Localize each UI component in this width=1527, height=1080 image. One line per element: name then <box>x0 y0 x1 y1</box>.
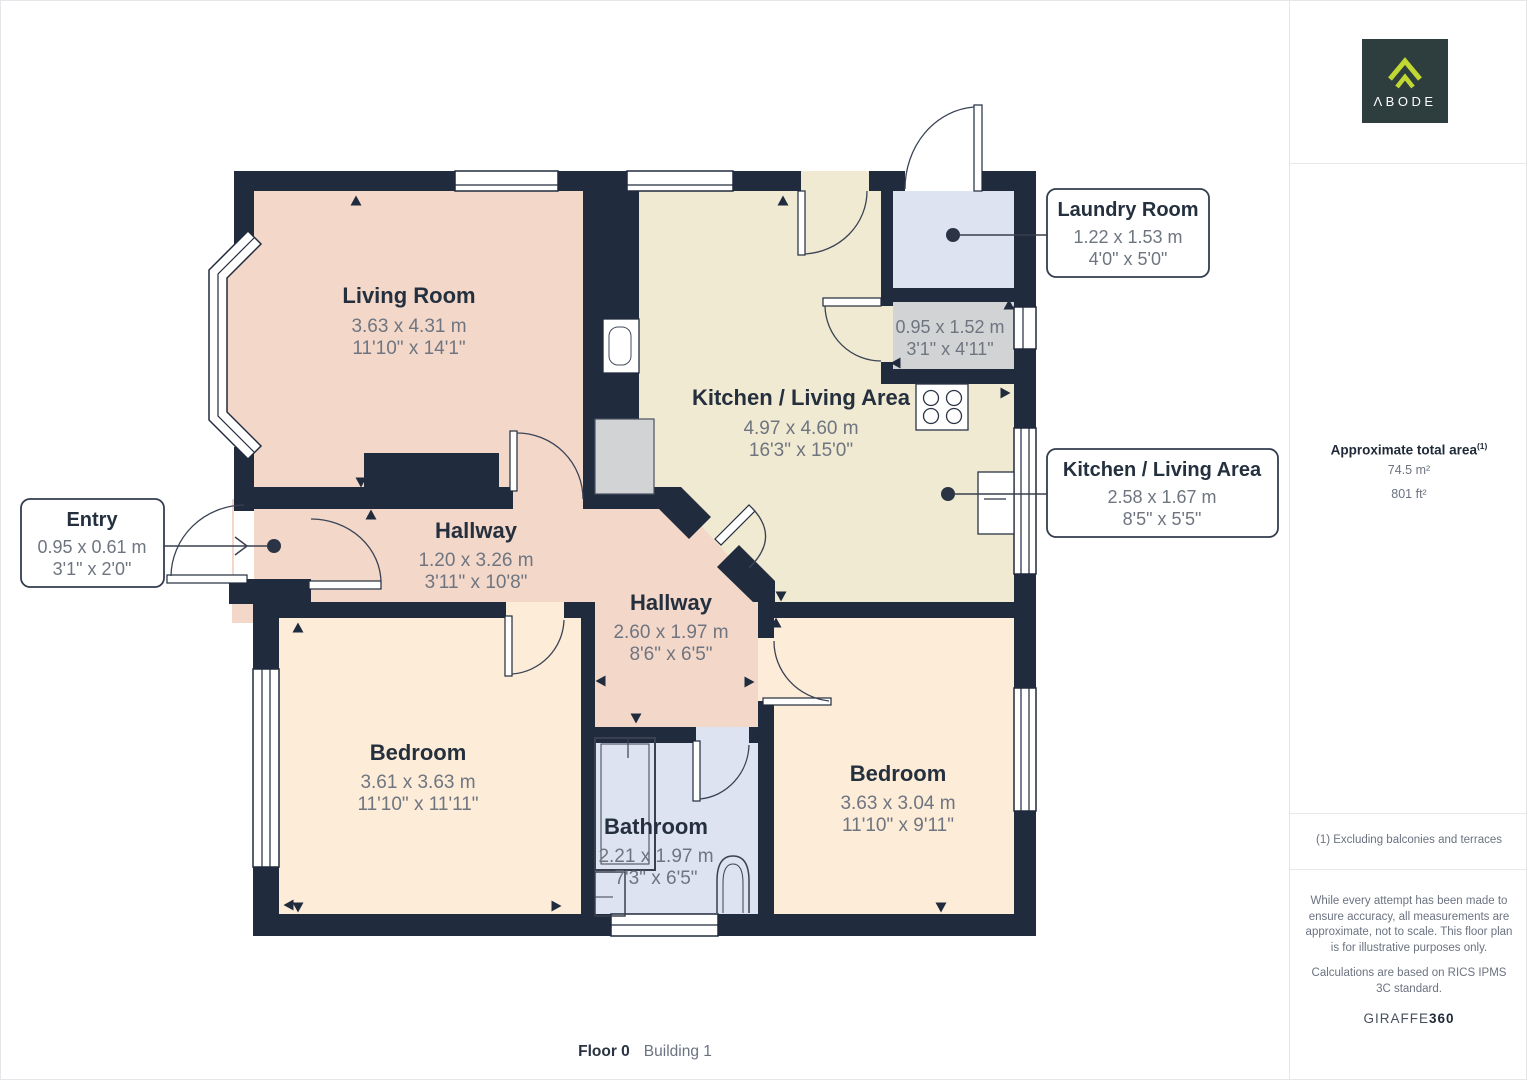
total-area-title: Approximate total area(1) <box>1290 441 1527 458</box>
callout-dims-metric: 1.22 x 1.53 m <box>1073 227 1182 247</box>
abode-logo: ΛBODE <box>1362 39 1448 123</box>
label-hallway-upper: Hallway 1.20 x 3.26 m 3'11" x 10'8" <box>418 518 533 593</box>
floorplan-svg: Living Room 3.63 x 4.31 m 11'10" x 14'1"… <box>1 1 1289 1080</box>
door-entry <box>167 505 254 583</box>
room-dims-metric: 3.63 x 4.31 m <box>351 316 466 337</box>
sidebar-divider <box>1290 813 1527 814</box>
room-name: Hallway <box>435 518 518 543</box>
kitchen-point <box>941 487 955 501</box>
label-bedroom-left: Bedroom 3.61 x 3.63 m 11'10" x 11'11" <box>357 740 478 815</box>
room-dims-imperial: 11'10" x 9'11" <box>842 815 954 836</box>
room-dims-imperial: 3'11" x 10'8" <box>425 572 528 593</box>
room-dims-metric: 2.21 x 1.97 m <box>598 846 713 867</box>
room-dims-imperial: 3'1" x 4'11" <box>906 339 993 359</box>
callout-title: Laundry Room <box>1057 199 1198 221</box>
callout-dims-metric: 0.95 x 0.61 m <box>37 537 146 557</box>
laundry-point <box>946 228 960 242</box>
room-name: Bedroom <box>850 761 947 786</box>
floorplan-canvas: Living Room 3.63 x 4.31 m 11'10" x 14'1"… <box>1 1 1289 1080</box>
room-dims-imperial: 11'10" x 11'11" <box>357 794 478 815</box>
wall-niche <box>603 319 639 373</box>
abode-chevron-icon <box>1385 54 1425 90</box>
total-area-title-text: Approximate total area <box>1331 443 1477 458</box>
disclaimer-accuracy: While every attempt has been made to ens… <box>1303 894 1515 956</box>
brand-suffix: 360 <box>1429 1011 1455 1026</box>
brand-name: GIRAFFE <box>1363 1011 1429 1026</box>
sink-icon <box>978 472 1014 534</box>
callout-title: Kitchen / Living Area <box>1063 459 1262 481</box>
room-dims-imperial: 8'6" x 6'5" <box>629 644 712 665</box>
room-dims-metric: 0.95 x 1.52 m <box>895 317 1004 337</box>
label-bedroom-right: Bedroom 3.63 x 3.04 m 11'10" x 9'11" <box>840 761 955 836</box>
room-name: Kitchen / Living Area <box>692 385 911 410</box>
total-area-block: Approximate total area(1) 74.5 m² 801 ft… <box>1290 441 1527 506</box>
total-area-footnote-ref: (1) <box>1477 441 1487 451</box>
room-dims-metric: 3.61 x 3.63 m <box>360 772 475 793</box>
cupboard <box>595 419 654 494</box>
window-right-bedroom <box>1014 688 1036 811</box>
room-dims-metric: 2.60 x 1.97 m <box>613 622 728 643</box>
room-name: Hallway <box>630 590 713 615</box>
floor-bedroom-left <box>261 607 591 931</box>
room-name: Bedroom <box>370 740 467 765</box>
giraffe360-brand: GIRAFFE360 <box>1290 1011 1527 1026</box>
floor-caption: Floor 0Building 1 <box>1 1043 1289 1061</box>
window-right-closet <box>1014 307 1036 349</box>
callout-dims-imperial: 3'1" x 2'0" <box>53 559 132 579</box>
abode-logo-text: ΛBODE <box>1373 94 1436 109</box>
room-dims-metric: 4.97 x 4.60 m <box>743 418 858 439</box>
window-top-living <box>455 171 558 191</box>
floorplan-page: Living Room 3.63 x 4.31 m 11'10" x 14'1"… <box>0 0 1527 1080</box>
disclaimer-standard: Calculations are based on RICS IPMS 3C s… <box>1303 966 1515 997</box>
room-dims-imperial: 16'3" x 15'0" <box>749 440 853 461</box>
entry-point <box>267 539 281 553</box>
callout-kitchen-living-area: Kitchen / Living Area 2.58 x 1.67 m 8'5"… <box>1047 449 1278 537</box>
door-laundry <box>905 105 982 191</box>
stove-icon <box>916 384 968 430</box>
info-sidebar: ΛBODE Approximate total area(1) 74.5 m² … <box>1289 1 1527 1080</box>
label-hallway-lower: Hallway 2.60 x 1.97 m 8'6" x 6'5" <box>613 590 728 665</box>
room-dims-imperial: 11'10" x 14'1" <box>352 338 465 359</box>
room-name: Bathroom <box>604 814 708 839</box>
callout-entry: Entry 0.95 x 0.61 m 3'1" x 2'0" <box>21 499 164 587</box>
label-bathroom: Bathroom 2.21 x 1.97 m 7'3" x 6'5" <box>598 814 713 889</box>
window-top-kitchen <box>627 171 733 191</box>
window-left-bedroom <box>253 669 279 867</box>
callout-dims-imperial: 4'0" x 5'0" <box>1089 249 1168 269</box>
footnote-text: (1) Excluding balconies and terraces <box>1304 834 1514 846</box>
callout-title: Entry <box>66 509 118 531</box>
callout-dims-imperial: 8'5" x 5'5" <box>1123 509 1202 529</box>
building-label: Building 1 <box>644 1043 712 1060</box>
window-right-kitchen <box>1014 428 1036 574</box>
room-dims-metric: 1.20 x 3.26 m <box>418 550 533 571</box>
room-dims-imperial: 7'3" x 6'5" <box>614 868 697 889</box>
callout-laundry-room: Laundry Room 1.22 x 1.53 m 4'0" x 5'0" <box>1047 189 1209 277</box>
room-dims-metric: 3.63 x 3.04 m <box>840 793 955 814</box>
sidebar-divider <box>1290 163 1527 164</box>
sidebar-divider <box>1290 869 1527 870</box>
total-area-imperial: 801 ft² <box>1290 482 1527 506</box>
room-name: Living Room <box>342 283 475 308</box>
floor-label: Floor 0 <box>578 1043 630 1060</box>
total-area-metric: 74.5 m² <box>1290 458 1527 482</box>
label-living-room: Living Room 3.63 x 4.31 m 11'10" x 14'1" <box>342 283 475 359</box>
window-bottom-bathroom <box>611 914 718 936</box>
callout-dims-metric: 2.58 x 1.67 m <box>1107 487 1216 507</box>
